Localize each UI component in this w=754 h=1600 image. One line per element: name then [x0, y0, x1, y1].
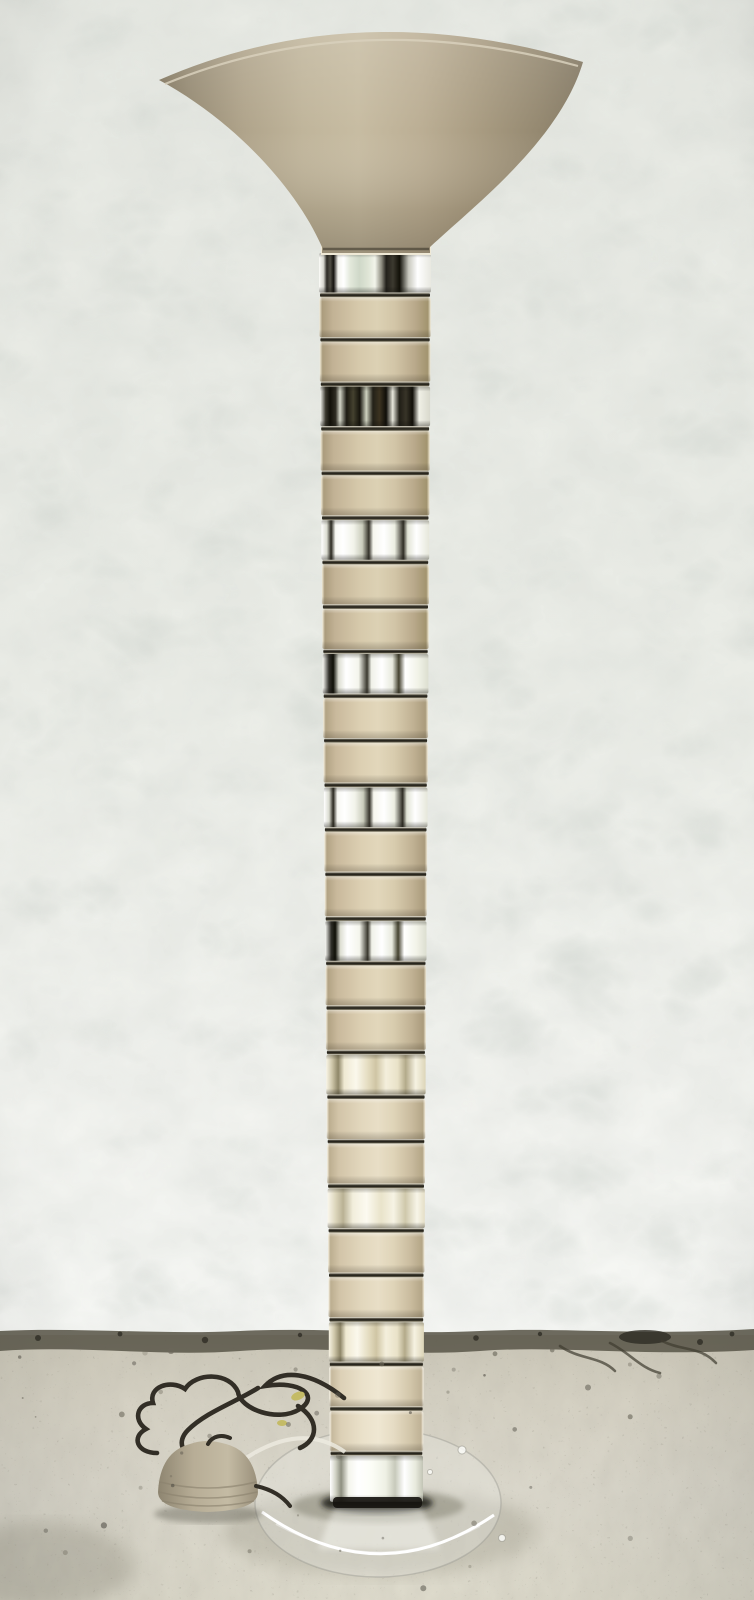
segment-divider-23: [329, 1317, 423, 1322]
segment-shading-11: [324, 743, 428, 783]
segment-divider-6: [322, 560, 428, 565]
segment-divider-22: [329, 1273, 424, 1278]
segment-shading-0: [319, 253, 431, 293]
segment-shading-22: [328, 1233, 425, 1273]
segment-divider-15: [326, 961, 425, 966]
segment-shading-19: [327, 1099, 426, 1139]
segment-divider-11: [325, 783, 427, 788]
product-photo: [0, 0, 754, 1600]
segment-divider-20: [328, 1184, 424, 1189]
segment-shading-24: [329, 1322, 424, 1362]
segment-shading-26: [330, 1411, 424, 1451]
segment-divider-5: [322, 515, 429, 520]
segment-shading-16: [326, 966, 427, 1006]
segment-shading-27: [330, 1456, 423, 1502]
segment-shading-10: [323, 699, 428, 739]
segment-shading-1: [319, 298, 430, 338]
segment-shading-4: [321, 431, 430, 471]
segment-shading-9: [323, 654, 429, 694]
segment-shading-25: [329, 1367, 423, 1407]
segment-shading-2: [320, 342, 431, 382]
segment-divider-21: [329, 1228, 424, 1233]
segment-shading-20: [327, 1144, 425, 1184]
segment-divider-1: [320, 337, 429, 342]
segment-divider-7: [323, 604, 428, 609]
segment-divider-25: [330, 1406, 422, 1411]
segment-divider-12: [325, 827, 427, 832]
segment-divider-4: [322, 471, 429, 476]
lamp-column: [319, 253, 431, 1502]
segment-shading-23: [328, 1278, 424, 1318]
column-foot-ring: [333, 1497, 422, 1508]
segment-divider-10: [324, 738, 427, 743]
segment-shading-12: [324, 788, 428, 828]
segment-divider-9: [324, 694, 428, 699]
segment-shading-18: [326, 1055, 425, 1095]
segment-divider-17: [327, 1050, 425, 1055]
segment-divider-24: [330, 1362, 423, 1367]
segment-divider-8: [323, 649, 427, 654]
segment-divider-0: [320, 293, 430, 298]
segment-shading-13: [324, 832, 427, 872]
segment-shading-17: [326, 1010, 426, 1050]
segment-divider-19: [328, 1139, 425, 1144]
segment-shading-15: [325, 921, 426, 961]
segment-shading-8: [322, 609, 428, 649]
segment-shading-3: [320, 387, 430, 427]
segment-shading-14: [325, 877, 427, 917]
segment-divider-3: [321, 426, 429, 431]
segment-shading-21: [328, 1189, 425, 1229]
segment-shading-6: [321, 520, 429, 560]
segment-shading-5: [321, 476, 430, 516]
segment-shading-7: [322, 565, 429, 605]
column-reflection-on-base: [318, 1508, 440, 1549]
segment-divider-13: [325, 872, 426, 877]
segment-divider-2: [321, 382, 430, 387]
segment-divider-14: [326, 916, 426, 921]
segment-divider-16: [327, 1005, 426, 1010]
segment-divider-18: [327, 1095, 424, 1100]
